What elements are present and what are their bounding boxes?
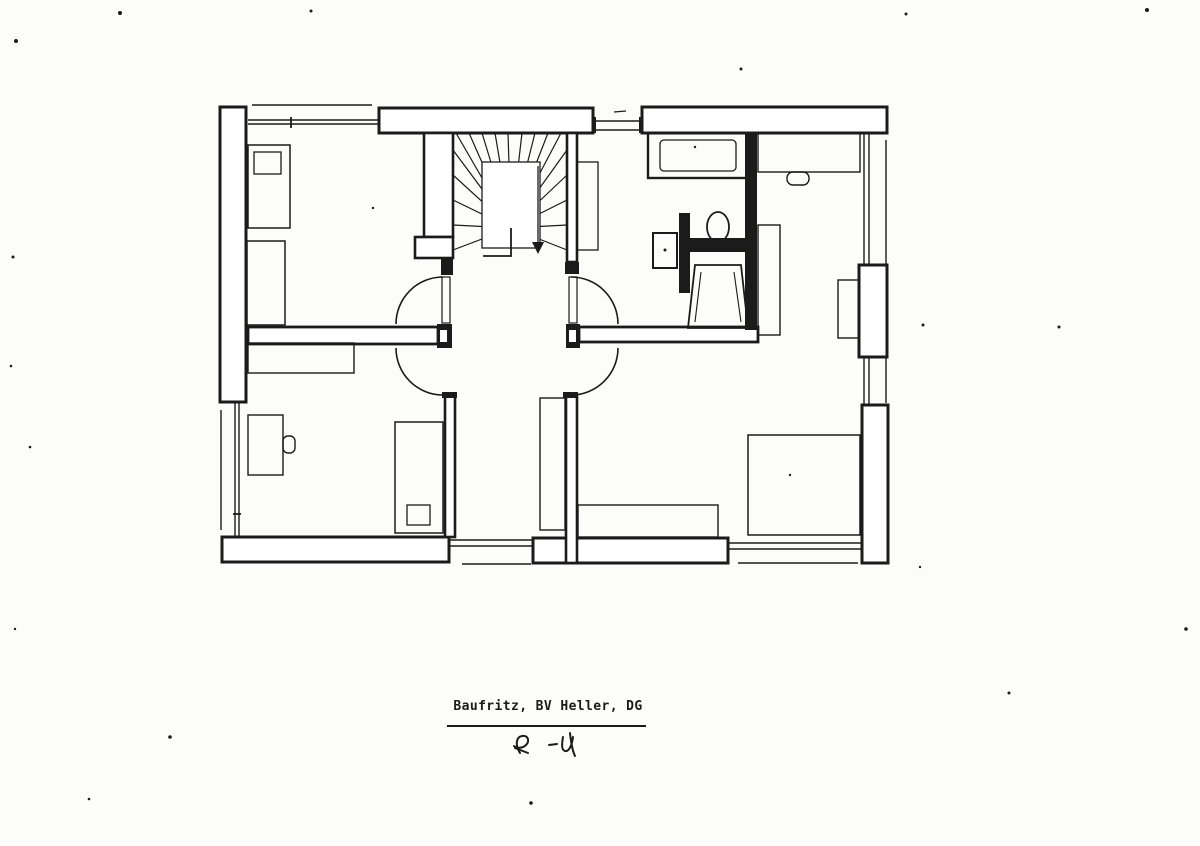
scanned-floor-plan-page: { "colors": { "paper": "#fcfcfa", "ink":… — [0, 0, 1200, 846]
window-jamb-top — [592, 117, 596, 133]
shower-tray — [688, 265, 748, 328]
window-jamb-top — [639, 117, 643, 133]
wall-bath-partition-vertical — [679, 213, 690, 293]
desk — [838, 280, 859, 338]
wall-stair-left-jog — [415, 237, 453, 258]
scan-speck — [919, 566, 921, 568]
wall-bath-partition-horizontal — [690, 238, 746, 252]
scan-speck — [14, 628, 16, 630]
handwritten-mark — [514, 733, 575, 756]
sink-drain — [664, 249, 667, 252]
scan-speck — [1184, 627, 1188, 631]
wall-lower-left — [445, 395, 455, 537]
shelf — [758, 225, 780, 335]
wall-exterior-left — [220, 107, 246, 402]
scan-speck — [118, 11, 122, 15]
bed — [247, 241, 285, 325]
scan-speck — [10, 365, 13, 368]
floor-plan — [0, 0, 1200, 846]
door-jamb — [441, 258, 453, 275]
wall-mid-left — [248, 327, 438, 344]
bed — [395, 422, 443, 533]
desk — [248, 415, 283, 475]
scan-speck — [694, 146, 696, 148]
wall-stair-left — [424, 133, 453, 237]
wall-bottom-left — [222, 537, 449, 562]
door-leaf — [569, 277, 577, 323]
scan-speck — [12, 256, 15, 259]
wall-right-dormer-upper — [859, 265, 887, 357]
bed-pillow — [407, 505, 430, 525]
scan-speck — [29, 446, 32, 449]
cabinet — [248, 343, 354, 373]
drawing-title: Baufritz, BV Heller, DG — [440, 699, 656, 714]
bathtub-inner — [660, 140, 736, 171]
scan-speck — [922, 324, 925, 327]
wall-top-stair — [379, 108, 593, 133]
wall-top-right — [642, 107, 887, 133]
jamb-notch — [440, 330, 447, 342]
wardrobe — [540, 398, 565, 530]
wall-right-dormer-lower — [862, 405, 888, 563]
window-tick-top-middle — [614, 111, 626, 112]
bed-pillow — [254, 152, 281, 174]
wall-bottom-middle — [533, 538, 728, 563]
door-jamb — [565, 262, 579, 274]
bed — [748, 435, 860, 535]
scan-speck — [529, 801, 533, 805]
chair — [787, 172, 809, 185]
scan-speck — [905, 13, 908, 16]
scan-speck — [1058, 326, 1061, 329]
bath-shelf — [577, 162, 598, 250]
door-swing-arc — [396, 277, 443, 324]
wall-mid-right — [579, 327, 758, 342]
door-swing-arc — [571, 277, 618, 324]
scan-speck — [372, 207, 374, 209]
wall-lower-right — [566, 395, 577, 563]
scan-speck — [14, 39, 18, 43]
scan-speck — [168, 735, 172, 739]
scan-speck — [740, 68, 743, 71]
jamb-notch — [569, 330, 576, 342]
scan-speck — [789, 474, 791, 476]
scan-speck — [88, 798, 91, 801]
title-underline — [447, 725, 646, 727]
door-leaf — [442, 277, 450, 323]
wall-stair-right — [567, 133, 577, 262]
door-jamb — [442, 392, 457, 398]
scan-speck — [1145, 8, 1149, 12]
toilet — [707, 212, 729, 242]
scan-speck — [1008, 692, 1011, 695]
shower-tray-inner — [695, 272, 701, 322]
door-swing-arc — [571, 348, 618, 395]
door-swing-arc — [396, 348, 443, 395]
chair — [283, 436, 295, 453]
scan-speck — [310, 10, 313, 13]
shower-tray-inner — [734, 272, 741, 322]
sideboard — [578, 505, 718, 537]
desk — [758, 133, 860, 172]
